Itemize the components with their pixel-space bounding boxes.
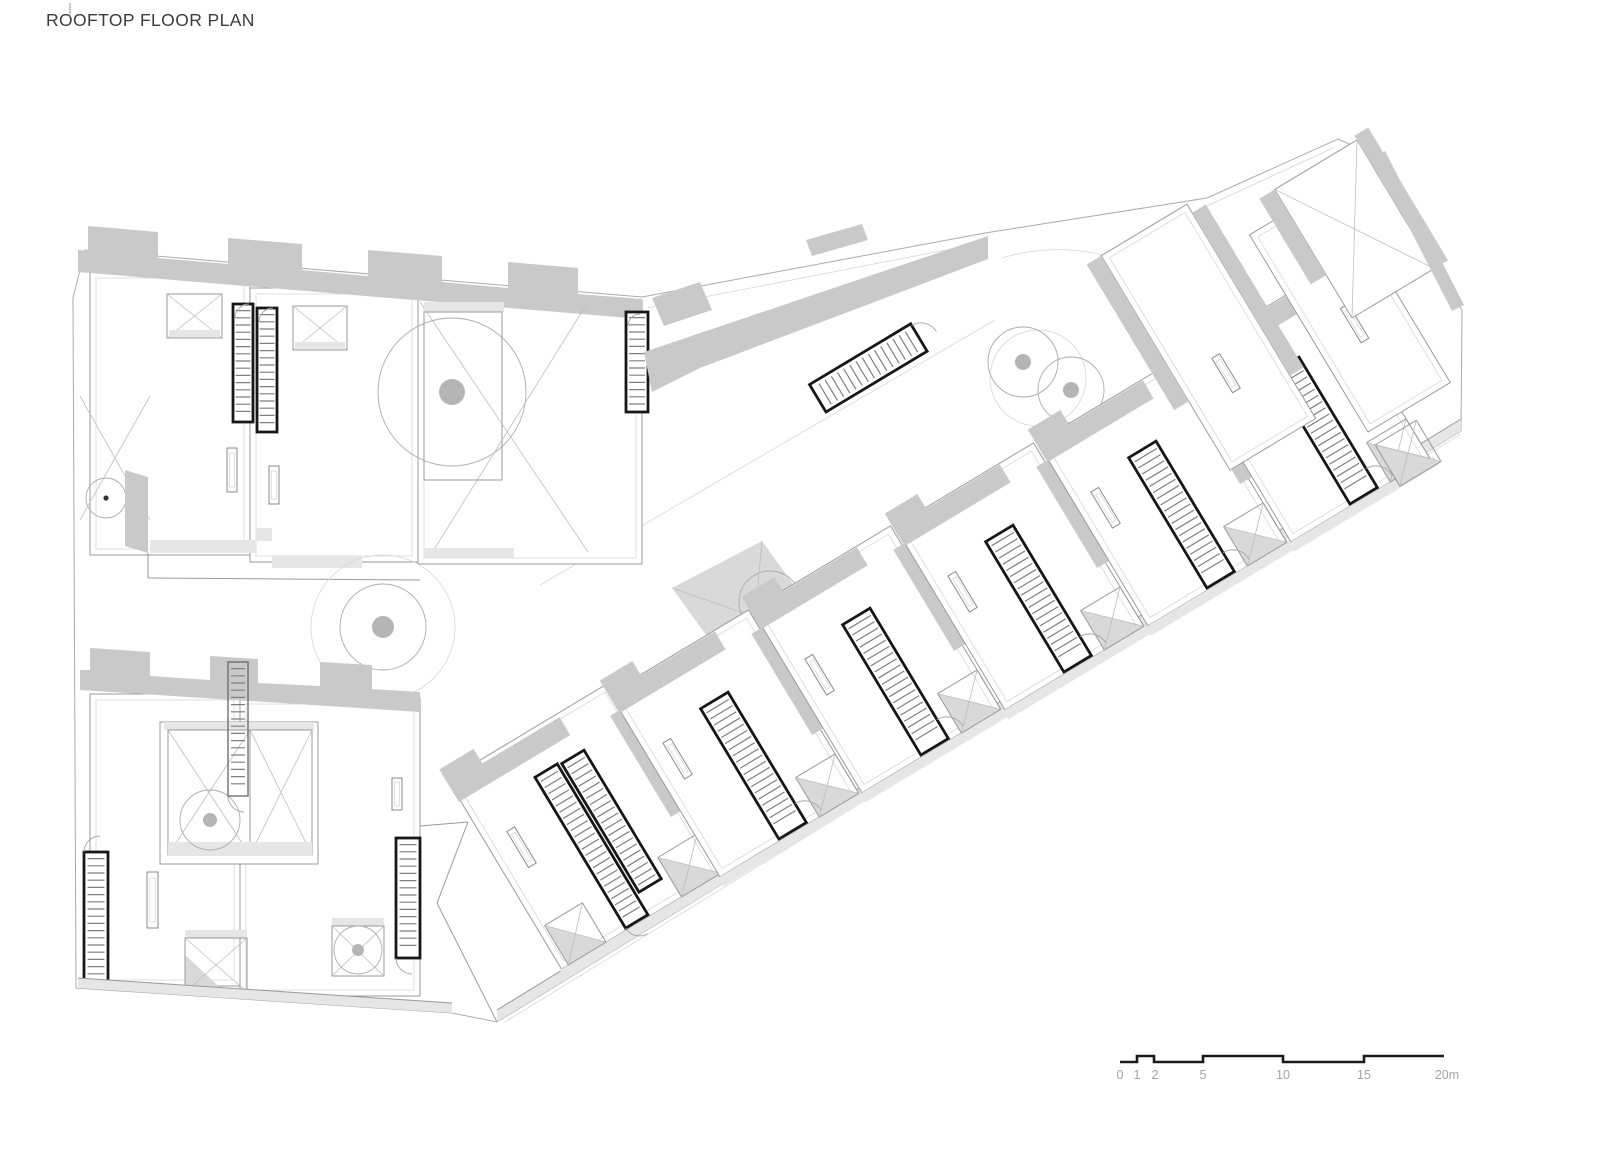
scale-bar-line [1120,1056,1444,1062]
scale-label: 2 [1152,1068,1159,1082]
roof-window-slot [392,778,402,810]
roof-window-slot [147,872,158,928]
sill [424,548,514,558]
scale-bar: 0 1 2 5 10 15 20m [1117,1056,1460,1082]
stair [626,312,648,412]
wall-wedge [125,470,148,553]
scale-label: 1 [1134,1068,1141,1082]
roof-window-slot [227,448,237,492]
courtyard-skylights [160,722,318,864]
scale-label: 15 [1357,1068,1371,1082]
sill [424,302,504,312]
stair [84,836,108,984]
scale-label: 5 [1200,1068,1207,1082]
stair [396,838,420,974]
scale-label: 20m [1435,1068,1459,1082]
scale-label: 0 [1117,1068,1124,1082]
drawing-sheet: ROOFTOP FLOOR PLAN [0,0,1600,1174]
sill [256,528,272,541]
upper-left-block [78,226,648,580]
skylight-box [167,294,222,338]
sill [272,556,362,568]
floor-plan-canvas: 0 1 2 5 10 15 20m [0,0,1600,1174]
room [418,300,642,564]
scale-label: 10 [1276,1068,1290,1082]
skylight-box [293,306,347,350]
wall-tooth [806,224,868,256]
roof-window-slot [269,466,279,504]
sill [150,540,256,553]
